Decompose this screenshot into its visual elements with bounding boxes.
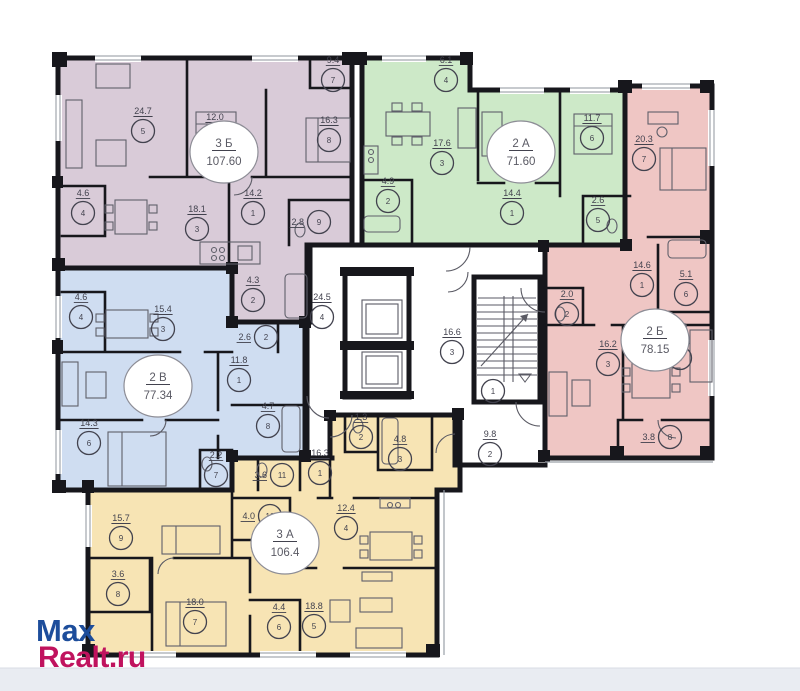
- room-area: 3.8: [642, 432, 655, 442]
- apartment-area: 71.60: [507, 156, 536, 168]
- room-area: 4.7: [262, 401, 275, 411]
- room-label: 29.8: [479, 429, 502, 466]
- room-label: 1: [482, 380, 505, 403]
- apartment-type: 2 В: [149, 372, 167, 384]
- apartment-label: 3 Б107.60: [190, 121, 258, 183]
- room-area: 18.8: [305, 601, 323, 611]
- room-number: 6: [684, 290, 689, 299]
- room-area: 4.6: [75, 292, 88, 302]
- room-area: 4.0: [242, 511, 255, 521]
- room-area: 16.3: [311, 448, 329, 458]
- room-area: 2.2: [210, 450, 223, 460]
- room-number: 1: [251, 209, 256, 218]
- room-area: 3.6: [112, 569, 125, 579]
- room-area: 2.0: [561, 289, 574, 299]
- room-area: 14.3: [80, 418, 98, 428]
- apartment-type: 3 А: [276, 529, 294, 541]
- balcony-railings: [444, 462, 713, 655]
- apartment-type: 2 Б: [646, 326, 663, 338]
- apartment-area: 77.34: [144, 390, 173, 402]
- apartment-label: 2 В77.34: [124, 355, 192, 417]
- room-number: 4: [81, 209, 86, 218]
- room-area: 15.4: [154, 304, 172, 314]
- room-number: 4: [79, 313, 84, 322]
- room-area: 4.9: [382, 176, 395, 186]
- room-area: 2.8: [291, 217, 304, 227]
- room-number: 2: [386, 197, 391, 206]
- room-area: 16.6: [443, 327, 461, 337]
- apartment-area: 106.4: [271, 547, 300, 559]
- room-number: 8: [116, 590, 121, 599]
- room-area: 3.6: [254, 470, 267, 480]
- room-area: 24.5: [313, 292, 331, 302]
- room-number: 6: [590, 134, 595, 143]
- room-area: 11.8: [231, 355, 248, 365]
- room-number: 7: [331, 76, 336, 85]
- room-number: 8: [266, 422, 271, 431]
- apartment-badge: [487, 121, 555, 183]
- room-area: 24.7: [134, 106, 152, 116]
- room-number: 3: [606, 360, 611, 369]
- room-area: 4.3: [247, 275, 260, 285]
- apartment-badge: [621, 309, 689, 371]
- room-number: 3: [195, 225, 200, 234]
- apartment-type: 3 Б: [215, 138, 232, 150]
- room-number: 2: [488, 450, 493, 459]
- room-number: 3: [161, 325, 166, 334]
- room-label: 424.5: [311, 292, 334, 329]
- apartment-area: 107.60: [206, 156, 241, 168]
- apartment-label: 3 А106.4: [251, 512, 319, 574]
- room-area: 15.7: [112, 513, 130, 523]
- room-number: 4: [344, 524, 349, 533]
- apartment-badge: [124, 355, 192, 417]
- floorplan-image: 524.7612.0816.379.444.6318.1114.292.824.…: [0, 0, 800, 691]
- room-number: 6: [277, 623, 282, 632]
- room-number: 2: [359, 433, 364, 442]
- room-number: 1: [640, 281, 645, 290]
- room-area: 5.1: [680, 269, 693, 279]
- room-number: 2: [565, 310, 570, 319]
- room-area: 6.1: [440, 55, 453, 65]
- room-number: 2: [264, 333, 269, 342]
- apartment-area: 78.15: [641, 344, 670, 356]
- room-area: 20.3: [635, 134, 653, 144]
- room-number: 1: [318, 469, 323, 478]
- room-number: 3: [450, 348, 455, 357]
- room-number: 6: [87, 439, 92, 448]
- room-area: 16.3: [320, 115, 338, 125]
- room-number: 4: [320, 313, 325, 322]
- room-number: 4: [444, 76, 449, 85]
- room-area: 12.4: [337, 503, 355, 513]
- room-area: 17.6: [433, 138, 451, 148]
- room-number: 1: [510, 209, 515, 218]
- room-area: 2.6: [238, 332, 251, 342]
- room-number: 8: [327, 136, 332, 145]
- room-number: 7: [642, 155, 647, 164]
- room-number: 1: [237, 376, 242, 385]
- room-area: 1.3: [355, 412, 368, 422]
- room-number: 11: [278, 471, 287, 480]
- room-number: 5: [596, 216, 601, 225]
- floorplan-page: 524.7612.0816.379.444.6318.1114.292.824.…: [0, 0, 800, 691]
- room-number: 2: [251, 296, 256, 305]
- room-area: 9.8: [484, 429, 497, 439]
- apartment-label: 2 Б78.15: [621, 309, 689, 371]
- room-area: 9.4: [327, 55, 340, 65]
- room-number: 5: [312, 622, 317, 631]
- room-number: 3: [440, 159, 445, 168]
- room-number: 3: [398, 455, 403, 464]
- room-area: 11.7: [584, 113, 601, 123]
- room-number: 9: [119, 534, 124, 543]
- elevator-shaft: [340, 267, 414, 399]
- room-number: 7: [193, 618, 198, 627]
- room-number: 1: [491, 387, 496, 396]
- bottom-strip: [0, 668, 800, 691]
- room-number: 9: [317, 218, 322, 227]
- room-area: 18.0: [186, 597, 204, 607]
- room-area: 4.6: [77, 188, 90, 198]
- apartment-type: 2 А: [512, 138, 530, 150]
- room-area: 14.4: [503, 188, 521, 198]
- room-label: 316.6: [441, 327, 464, 364]
- room-area: 4.8: [394, 434, 407, 444]
- room-area: 2.6: [592, 195, 605, 205]
- apartment-badge: [251, 512, 319, 574]
- room-area: 4.4: [273, 602, 286, 612]
- room-area: 14.6: [633, 260, 651, 270]
- room-number: 7: [214, 471, 219, 480]
- room-area: 18.1: [188, 204, 206, 214]
- room-area: 14.2: [244, 188, 262, 198]
- room-number: 5: [141, 127, 146, 136]
- apartment-badge: [190, 121, 258, 183]
- room-area: 16.2: [599, 339, 617, 349]
- apartment-label: 2 А71.60: [487, 121, 555, 183]
- room-number: 8: [668, 433, 673, 442]
